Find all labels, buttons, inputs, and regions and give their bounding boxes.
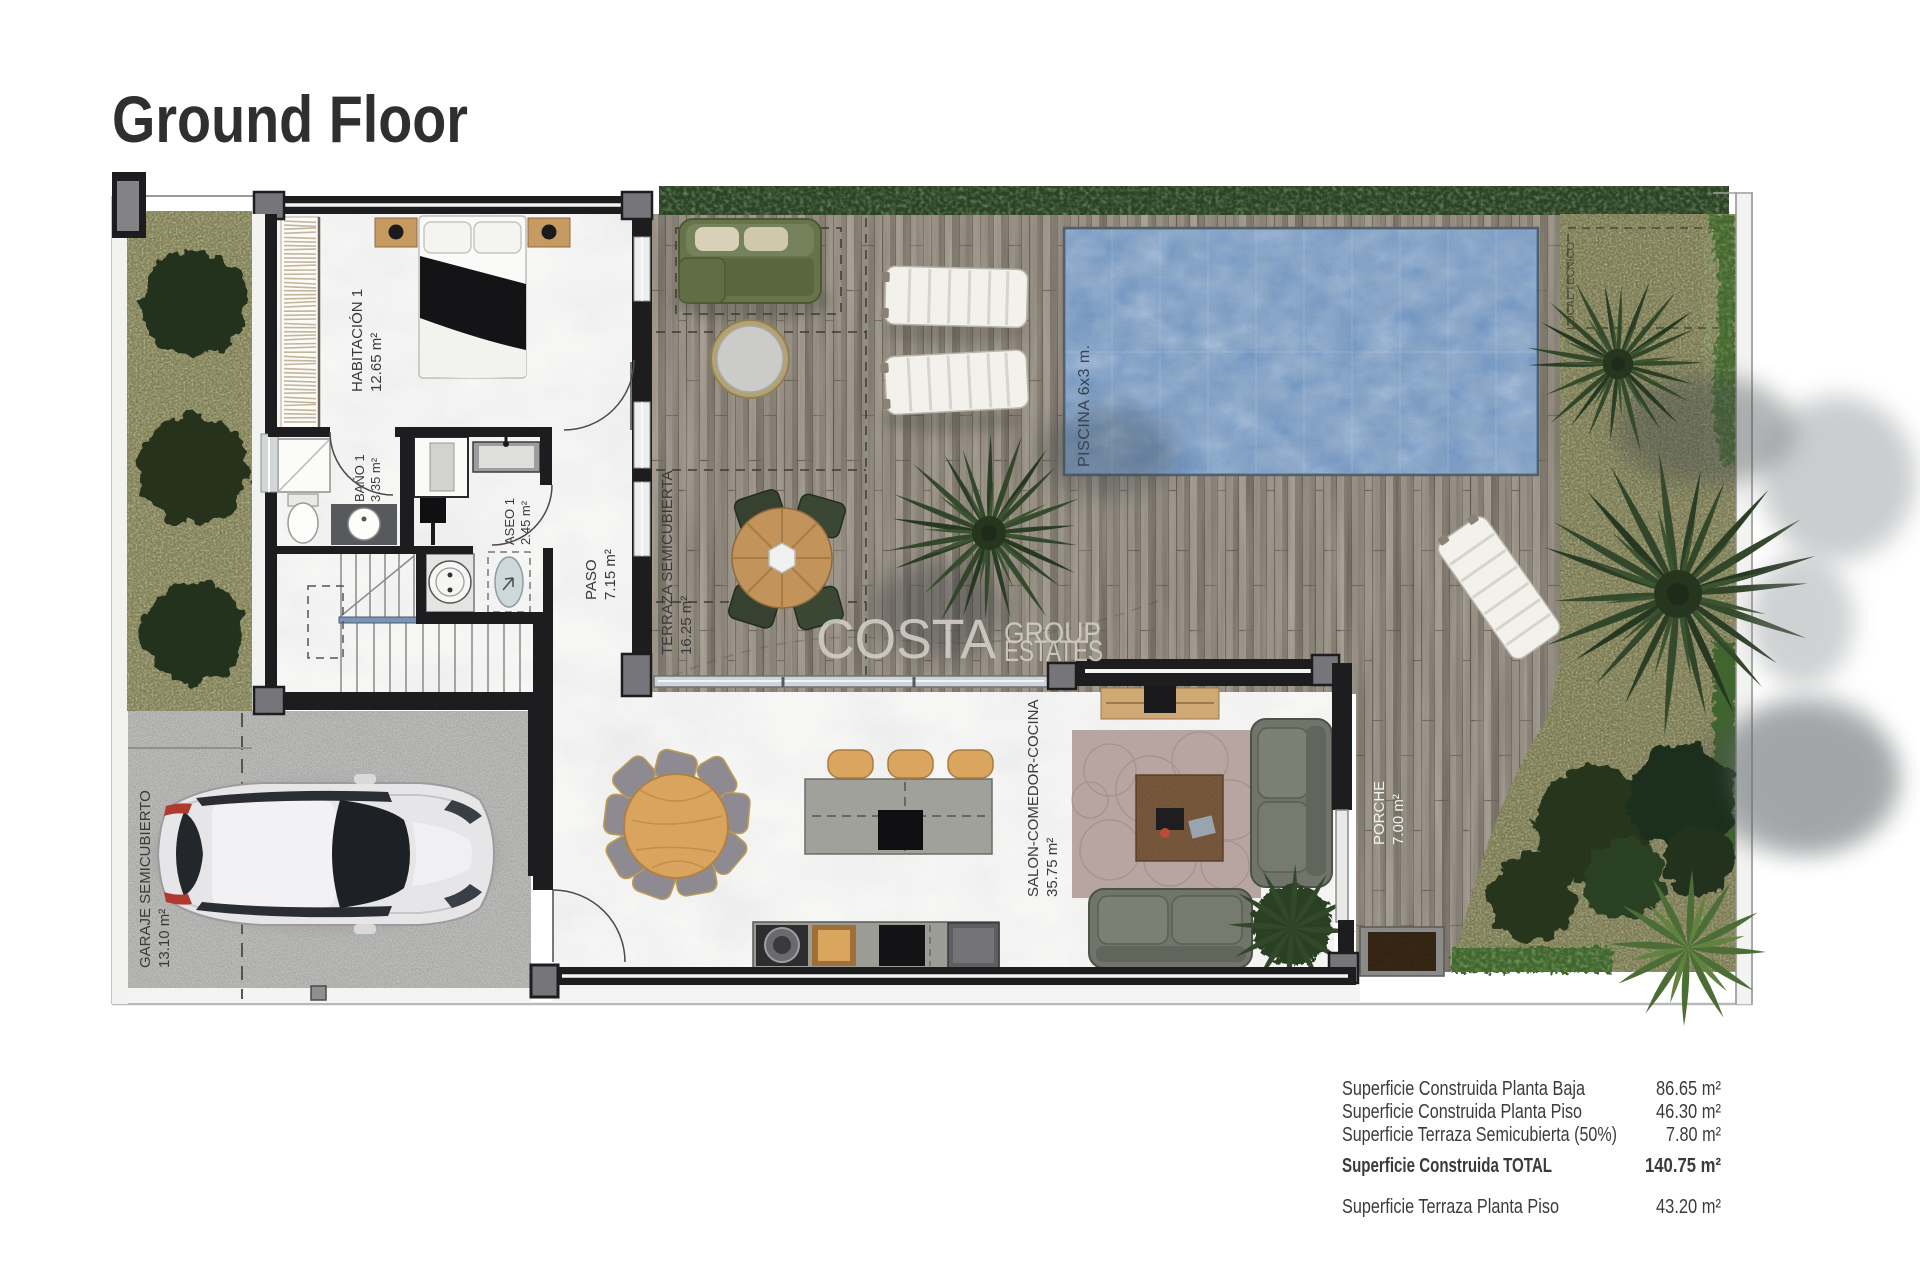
svg-text:GARAJE SEMICUBIERTO: GARAJE SEMICUBIERTO (137, 790, 154, 968)
svg-text:43.20 m²: 43.20 m² (1656, 1196, 1721, 1218)
svg-text:PORCHE: PORCHE (1371, 781, 1388, 845)
svg-text:7.80 m²: 7.80 m² (1666, 1124, 1721, 1146)
svg-text:7.00 m²: 7.00 m² (1390, 794, 1407, 845)
svg-text:Superficie Construida TOTAL: Superficie Construida TOTAL (1342, 1155, 1552, 1177)
svg-text:13.10 m²: 13.10 m² (156, 909, 173, 968)
svg-text:35.75 m²: 35.75 m² (1044, 838, 1061, 897)
svg-text:PASO: PASO (583, 559, 600, 600)
svg-text:Superficie Terraza Semicubiert: Superficie Terraza Semicubierta (50%) (1342, 1124, 1617, 1146)
svg-text:HABITACIÓN 1: HABITACIÓN 1 (349, 289, 366, 392)
svg-text:Ground Floor: Ground Floor (112, 82, 468, 156)
svg-text:7.15 m²: 7.15 m² (602, 549, 619, 600)
svg-text:COSTA: COSTA (816, 607, 997, 670)
svg-text:46.30 m²: 46.30 m² (1656, 1101, 1721, 1123)
svg-text:140.75 m²: 140.75 m² (1645, 1155, 1721, 1177)
svg-text:SALON-COMEDOR-COCINA: SALON-COMEDOR-COCINA (1025, 699, 1042, 897)
svg-text:3.35 m²: 3.35 m² (368, 457, 383, 502)
svg-text:BAÑO 1: BAÑO 1 (352, 454, 367, 502)
svg-text:ASEO 1: ASEO 1 (502, 498, 517, 545)
svg-text:16.25 m²: 16.25 m² (678, 596, 695, 655)
svg-text:TERRAZA SEMICUBIERTA: TERRAZA SEMICUBIERTA (659, 471, 676, 655)
svg-text:86.65 m²: 86.65 m² (1656, 1078, 1721, 1100)
svg-text:Superficie Terraza Planta Piso: Superficie Terraza Planta Piso (1342, 1196, 1559, 1218)
svg-text:Superficie Construida Planta B: Superficie Construida Planta Baja (1342, 1078, 1586, 1100)
svg-text:Superficie Construida Planta P: Superficie Construida Planta Piso (1342, 1101, 1582, 1123)
svg-text:ESTATES: ESTATES (1004, 635, 1103, 668)
svg-text:12.65 m²: 12.65 m² (368, 333, 385, 392)
